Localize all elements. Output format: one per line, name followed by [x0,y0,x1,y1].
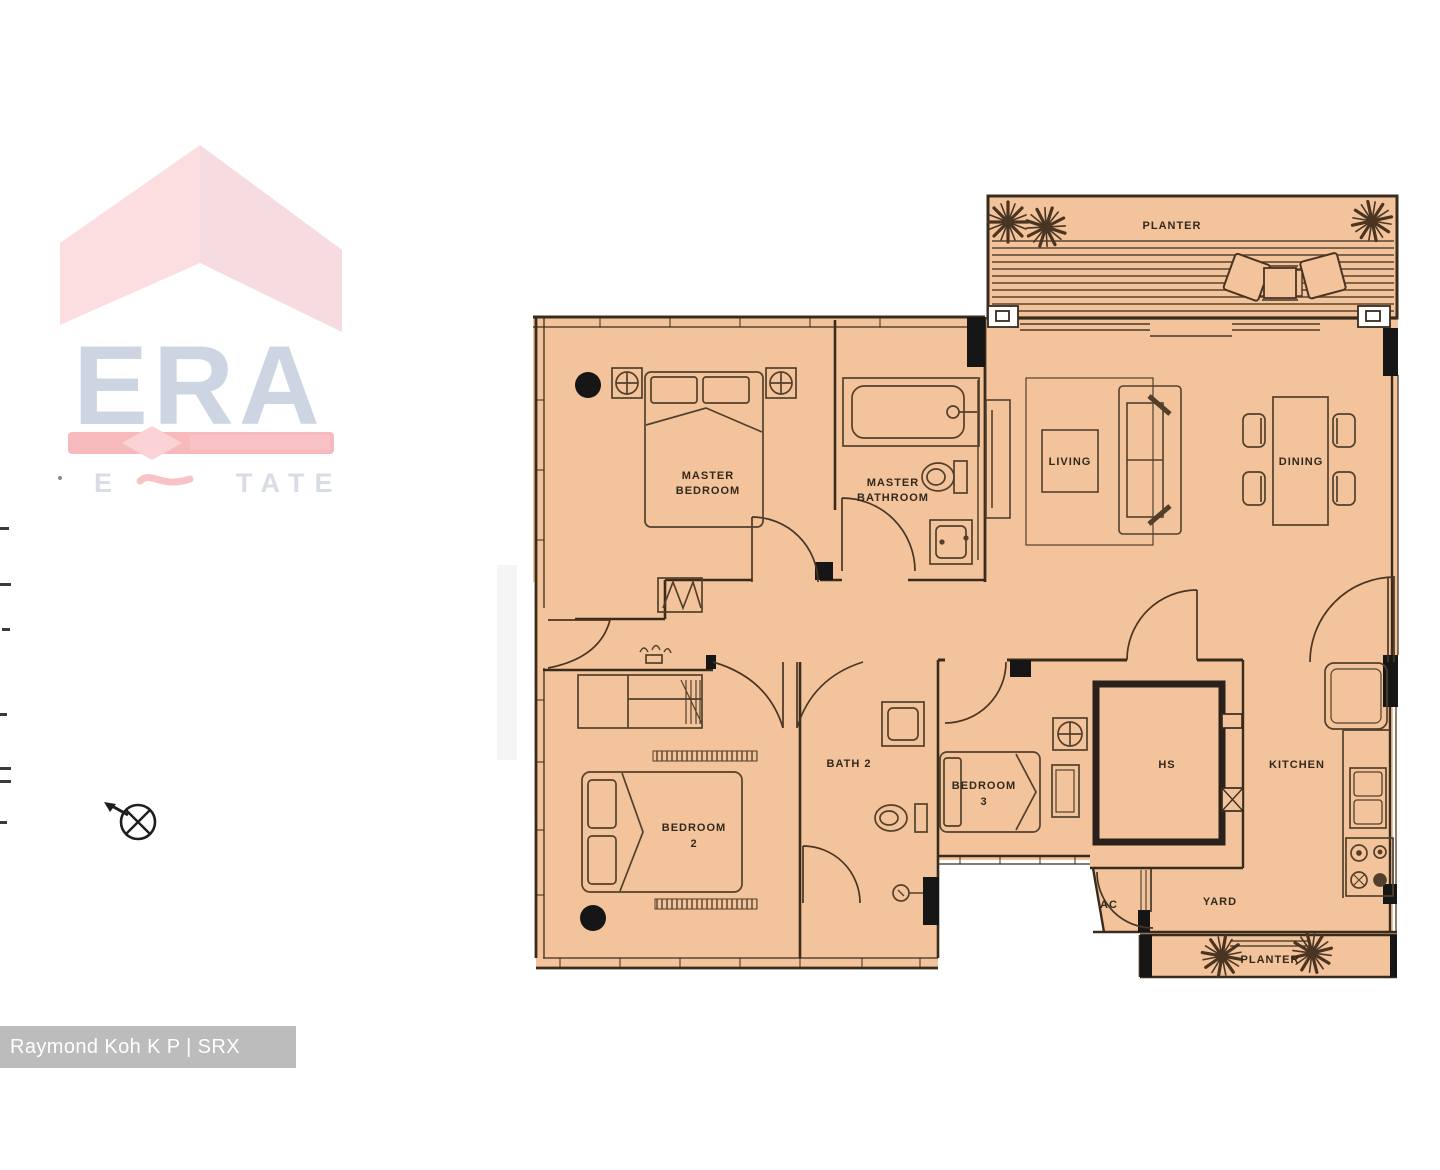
label-master-bathroom-2: BATHROOM [857,492,929,504]
label-bedroom3-2: 3 [980,796,987,808]
rug-fringe [653,751,757,761]
label-living: LIVING [1049,456,1092,468]
era-roof-left-icon [60,145,200,325]
label-master-bedroom-1: MASTER [682,470,734,482]
era-signature-swoosh-icon [140,477,190,482]
era-watermark: ERA E TATE [60,145,343,498]
label-bedroom2-2: 2 [690,838,697,850]
label-master-bedroom-2: BEDROOM [676,485,740,497]
era-estate-right-text: TATE [236,468,343,498]
label-bedroom3-1: BEDROOM [952,780,1016,792]
floor-fills [533,196,1398,977]
label-planter-bottom: PLANTER [1241,954,1300,966]
rug-fringe [655,899,757,909]
era-roof-right-icon [200,145,342,332]
agent-attribution-watermark: Raymond Koh K P | SRX PROPERTY [0,1026,296,1068]
watermark-strip-remnant [497,565,517,760]
label-hs: HS [1158,759,1175,771]
label-dining: DINING [1279,456,1324,468]
era-brand-text: ERA [73,323,324,448]
floorplan-page: ERA E TATE [0,0,1440,1170]
floorplan-canvas: ERA E TATE [0,0,1440,1170]
compass-icon [104,802,155,839]
label-master-bathroom-1: MASTER [867,477,919,489]
label-kitchen: KITCHEN [1269,759,1325,771]
label-bedroom2-1: BEDROOM [662,822,726,834]
left-edge-marks [0,476,62,824]
plant-icon [988,202,1028,242]
label-ac: AC [1100,899,1118,911]
era-estate-left-text: E [94,468,122,498]
era-red-bar-highlight [190,435,330,450]
label-bath2: BATH 2 [827,758,872,770]
label-planter-top: PLANTER [1143,220,1202,232]
label-yard: YARD [1203,896,1237,908]
